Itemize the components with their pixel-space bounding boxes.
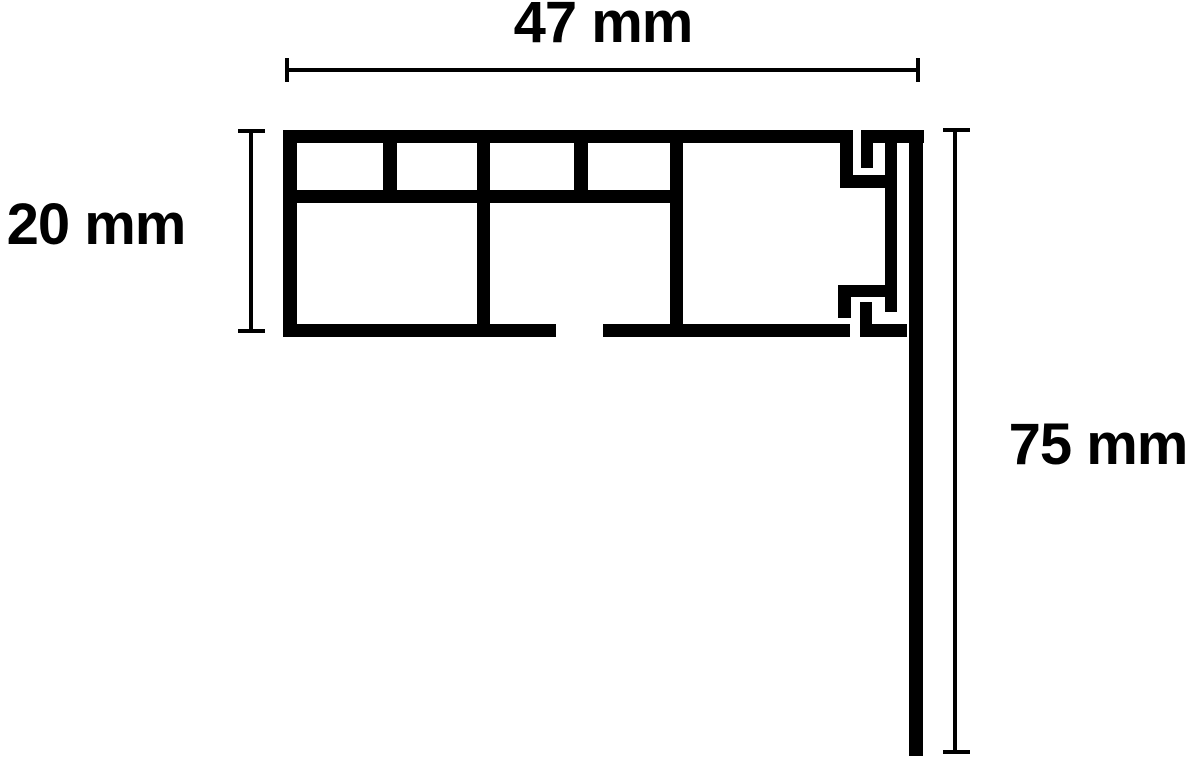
profile-top-cell-divider-2 bbox=[574, 130, 588, 203]
dim-height-line bbox=[249, 130, 253, 332]
dimension-drop bbox=[943, 128, 970, 754]
clip-inner-rail bbox=[885, 130, 897, 312]
clip-top-hook-descender bbox=[861, 130, 873, 168]
dim-width-tick-right bbox=[916, 58, 920, 82]
dim-drop-line bbox=[953, 130, 957, 753]
dim-drop-tick-top bbox=[943, 128, 970, 132]
clip-bottom-bar bbox=[860, 324, 907, 337]
profile-right-drop-wall bbox=[909, 130, 923, 756]
height-dimension-label: 20 mm bbox=[0, 196, 192, 254]
drop-dimension-label: 75 mm bbox=[998, 416, 1198, 474]
profile-full-divider-1 bbox=[477, 130, 490, 337]
dim-width-line bbox=[286, 68, 920, 72]
diagram-canvas: 47 mm 20 mm 75 mm bbox=[0, 0, 1200, 763]
dim-drop-tick-bottom bbox=[943, 750, 970, 754]
profile-main-box bbox=[283, 130, 852, 337]
profile-bottom-wall-left bbox=[283, 324, 556, 337]
profile-cross-section-drawing bbox=[0, 0, 1200, 763]
clip-bottom-hook-descender bbox=[838, 285, 851, 318]
profile-full-divider-2 bbox=[670, 130, 683, 337]
dimension-width bbox=[285, 58, 920, 82]
profile-clip-joint bbox=[838, 130, 924, 756]
dim-height-tick-bottom bbox=[238, 329, 265, 333]
dim-height-tick-top bbox=[238, 129, 265, 133]
profile-top-wall bbox=[283, 130, 852, 143]
width-dimension-label: 47 mm bbox=[286, 0, 920, 52]
profile-bottom-wall-right bbox=[603, 324, 850, 337]
profile-left-wall bbox=[283, 130, 297, 337]
profile-top-cell-divider-1 bbox=[383, 130, 397, 203]
dim-width-tick-left bbox=[285, 58, 289, 82]
dimension-height bbox=[238, 129, 265, 333]
